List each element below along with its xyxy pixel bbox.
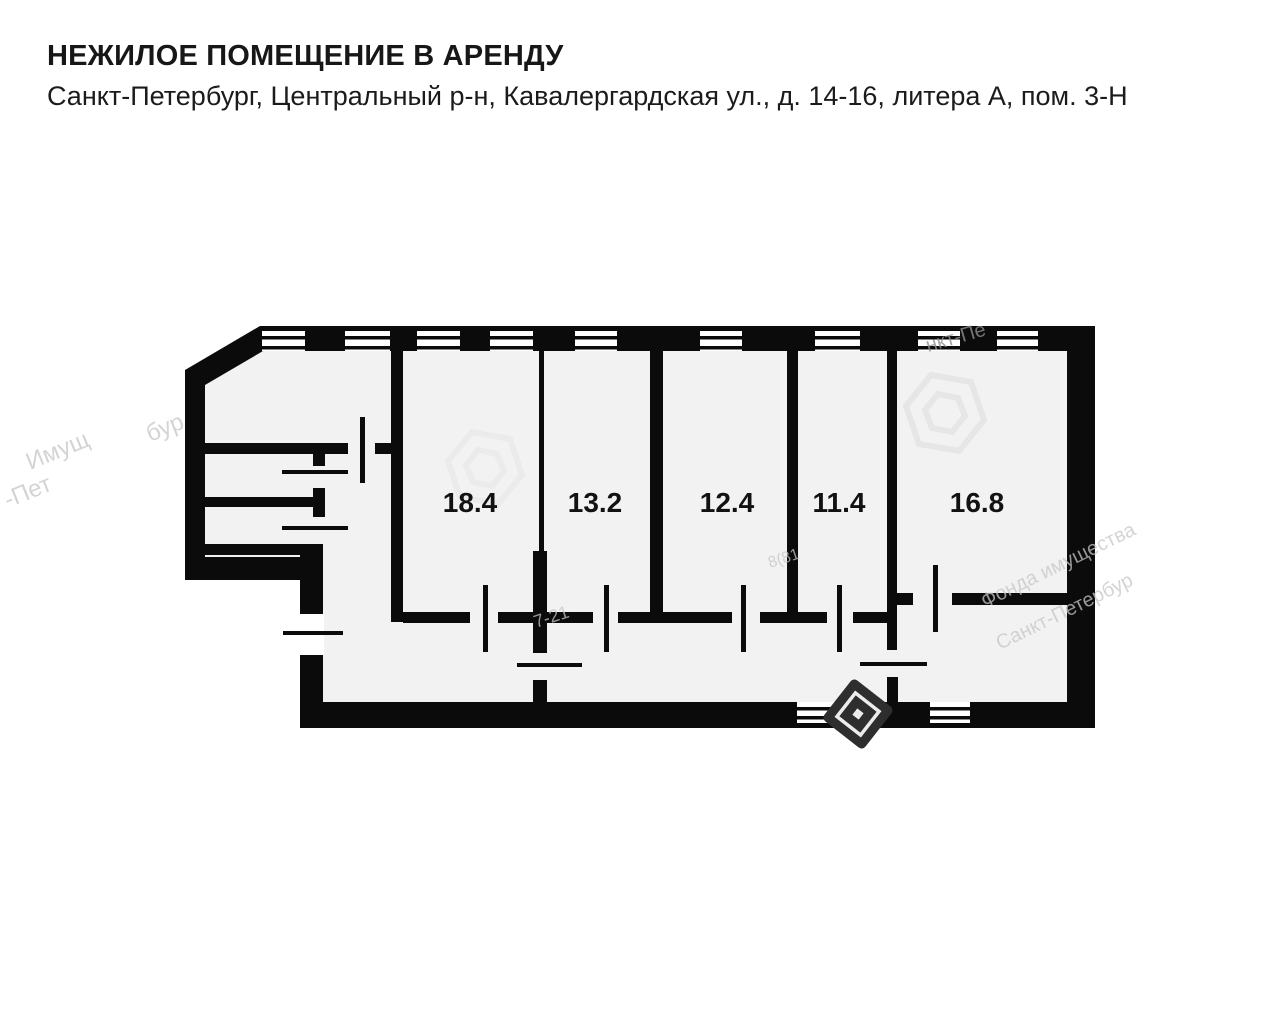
floor-plan: Имущ бур -Пет нкт-Пе Фонда имущества Сан… — [0, 0, 1280, 1033]
watermark-text: бур — [142, 408, 188, 447]
wall-segment — [533, 680, 547, 702]
window-glyph — [700, 331, 742, 351]
door-leaf — [741, 585, 746, 652]
closet-divider — [282, 526, 348, 530]
listing-page: НЕЖИЛОЕ ПОМЕЩЕНИЕ В АРЕНДУ Санкт-Петербу… — [0, 0, 1280, 1033]
watermark-text: -Пет — [0, 470, 55, 513]
window-glyph — [417, 331, 460, 351]
door-leaf — [933, 565, 938, 632]
window-glyph — [930, 702, 970, 723]
window-glyph — [815, 331, 860, 351]
room-area-label: 11.4 — [813, 487, 866, 518]
entrance-door-leaf — [283, 631, 343, 635]
corridor-wall — [403, 612, 470, 623]
wall-segment — [533, 551, 547, 653]
window-glyph — [490, 331, 533, 351]
corridor-wall — [618, 612, 732, 623]
window-glyph — [262, 331, 305, 351]
wall-segment — [897, 593, 913, 605]
wall-segment — [887, 351, 897, 650]
room-area-label: 16.8 — [950, 487, 1005, 518]
door-leaf — [837, 585, 842, 652]
wall-segment — [787, 351, 798, 623]
wall-segment — [300, 544, 323, 614]
wall-segment — [313, 488, 325, 517]
door-leaf — [360, 417, 365, 483]
window-glyph — [345, 331, 390, 351]
window-glyph — [575, 331, 617, 351]
window-glyph — [997, 331, 1038, 351]
wall-segment — [205, 497, 315, 507]
door-leaf — [604, 585, 609, 652]
wall-segment — [205, 443, 348, 454]
wall-segment — [887, 677, 898, 702]
wall-segment — [375, 443, 391, 454]
closet-divider — [282, 470, 348, 474]
room-area-label: 18.4 — [443, 487, 498, 518]
wall-segment — [539, 351, 544, 556]
wall-segment — [650, 351, 663, 623]
door-leaf — [517, 663, 582, 667]
wall-segment — [391, 351, 403, 622]
room-area-label: 12.4 — [700, 487, 755, 518]
door-leaf — [483, 585, 488, 652]
corridor-wall — [853, 612, 888, 623]
wall-segment — [205, 544, 315, 555]
wall-segment — [313, 453, 325, 466]
room-area-label: 13.2 — [568, 487, 623, 518]
watermark-text: Имущ — [22, 426, 93, 476]
corridor-wall — [760, 612, 827, 623]
door-leaf — [860, 662, 927, 666]
